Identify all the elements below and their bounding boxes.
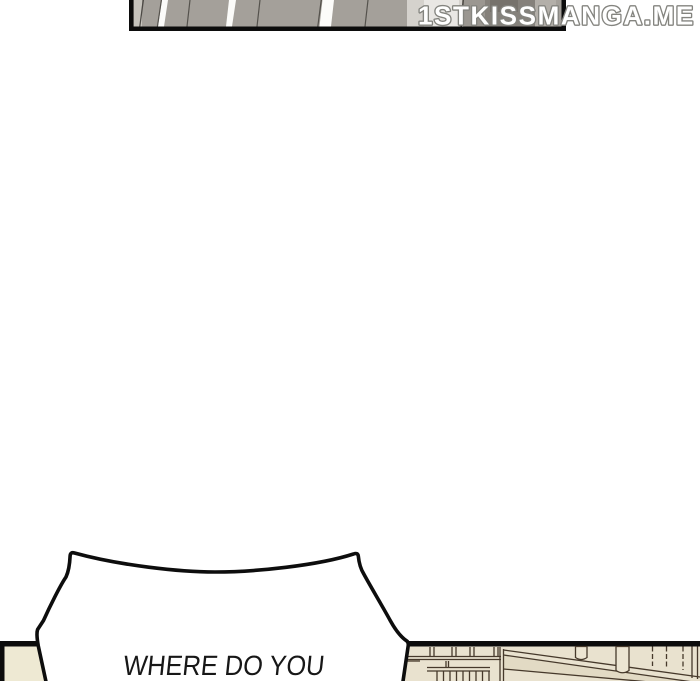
svg-text:1STKISSMANGA.ME: 1STKISSMANGA.ME xyxy=(418,1,695,31)
svg-text:WHERE DO YOU: WHERE DO YOU xyxy=(122,650,326,681)
